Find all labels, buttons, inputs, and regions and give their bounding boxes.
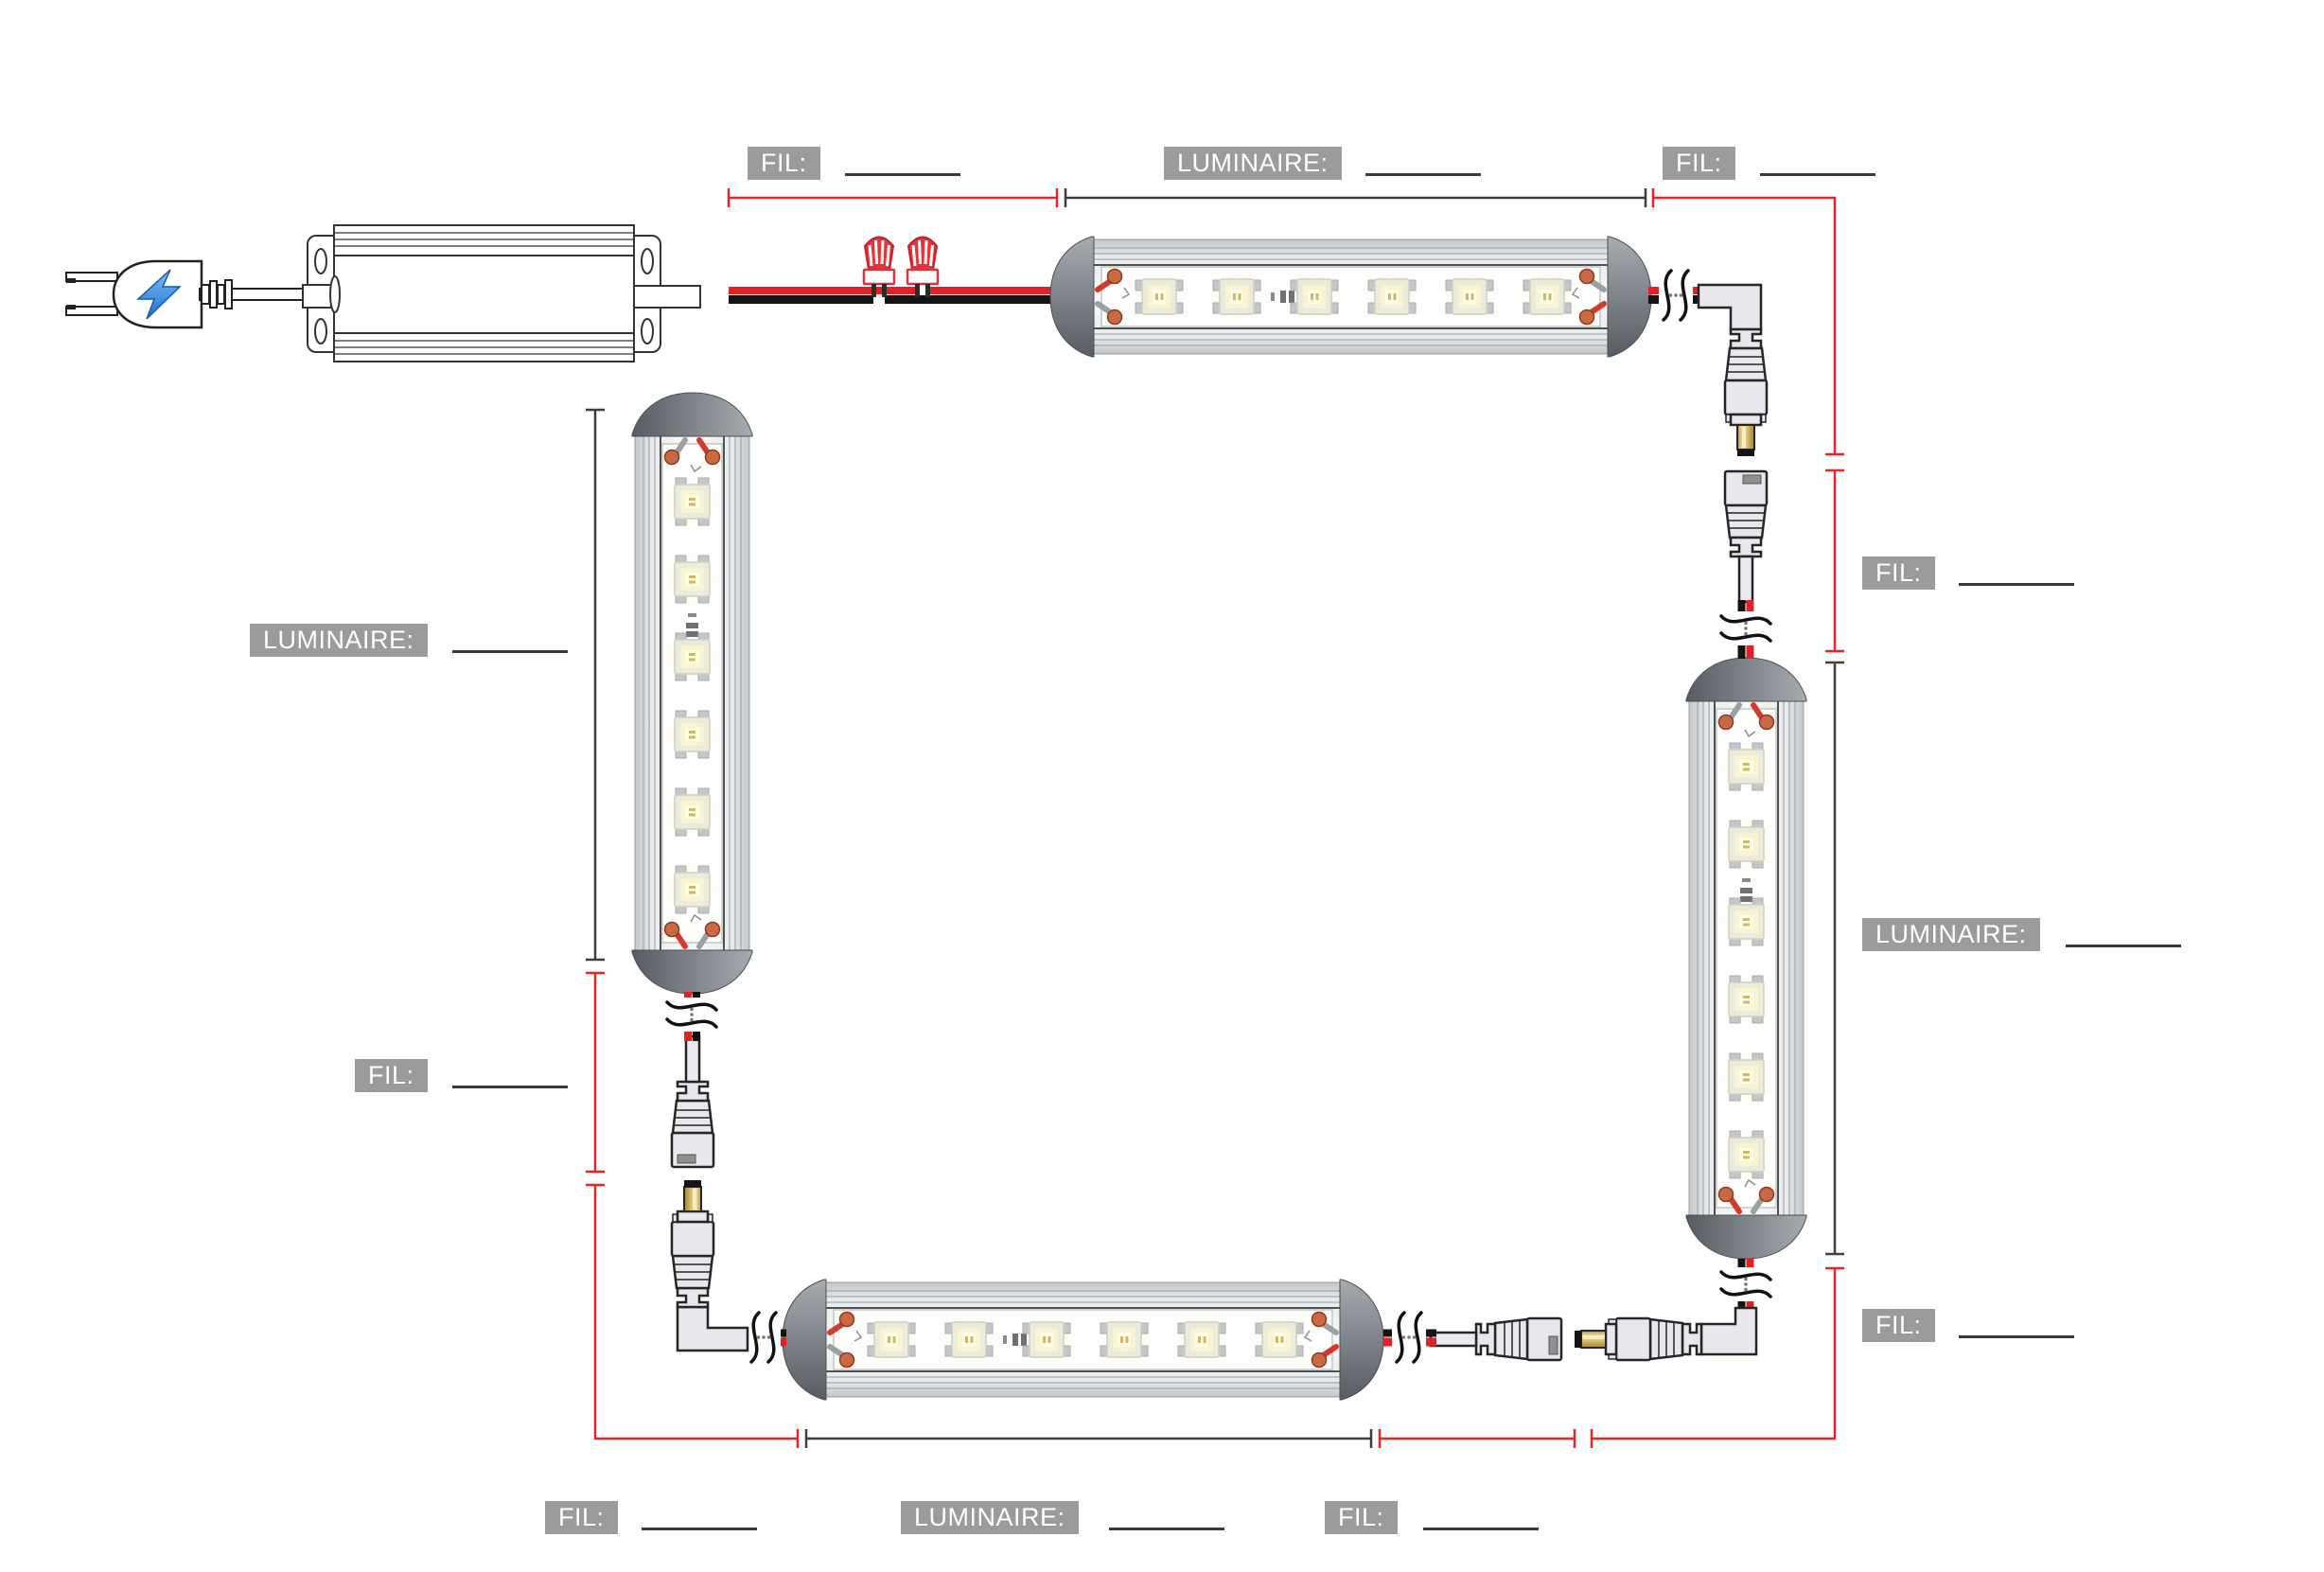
dc-jack-female <box>1725 471 1767 602</box>
led-bar-right <box>1686 658 1806 1259</box>
wire-bar3-output <box>744 1312 786 1363</box>
dc-plug-male <box>672 1180 713 1307</box>
wire-bar2-output <box>1720 1259 1771 1311</box>
dc-plug-male <box>1725 329 1767 456</box>
led-bar-top <box>1050 237 1651 357</box>
label-fil-left-middle: FIL: <box>355 1059 428 1092</box>
value-line-fil-bottom-middle <box>1423 1528 1539 1530</box>
value-line-luminaire-top <box>1365 173 1481 176</box>
wire-driver-to-bar1 <box>729 286 1055 305</box>
elbow-connector <box>1699 285 1761 329</box>
wire-bar4-to-jack <box>666 992 717 1041</box>
driver-output-terminal <box>634 286 700 308</box>
label-fil-bottom-left: FIL: <box>545 1501 618 1534</box>
label-luminaire-top: LUMINAIRE: <box>1164 147 1342 180</box>
value-line-luminaire-right <box>2066 945 2181 947</box>
label-fil-right-bottom: FIL: <box>1862 1309 1935 1342</box>
value-line-luminaire-bottom <box>1109 1528 1224 1530</box>
wiring-diagram-page: FIL: LUMINAIRE: FIL: FIL: LUMINAIRE: FIL… <box>0 0 2324 1572</box>
label-fil-right-middle: FIL: <box>1862 556 1935 590</box>
wire-jack-to-bar2 <box>1720 600 1771 659</box>
dc-plug-male <box>1575 1318 1701 1360</box>
label-fil-bottom-middle: FIL: <box>1325 1501 1398 1534</box>
ac-plug <box>66 261 315 327</box>
led-bar-left <box>632 393 752 994</box>
label-luminaire-right: LUMINAIRE: <box>1862 918 2040 951</box>
value-line-fil-top-left <box>845 173 960 176</box>
dimension-lines-luminaire <box>586 188 1844 1448</box>
label-fil-top-right: FIL: <box>1663 147 1735 180</box>
value-line-fil-left-middle <box>452 1086 568 1088</box>
label-fil-top-left: FIL: <box>748 147 820 180</box>
dc-jack-female <box>1431 1318 1561 1360</box>
dimension-lines-wire <box>586 188 1844 1448</box>
label-luminaire-bottom: LUMINAIRE: <box>901 1501 1079 1534</box>
value-line-fil-right-middle <box>1959 583 2074 586</box>
dc-jack-female <box>672 1036 713 1167</box>
wire-jack-to-bar3 <box>1383 1312 1436 1363</box>
power-driver <box>303 225 700 362</box>
value-line-luminaire-left <box>452 650 568 653</box>
value-line-fil-top-right <box>1760 173 1875 176</box>
value-line-fil-right-bottom <box>1959 1335 2074 1338</box>
value-line-fil-bottom-left <box>642 1528 757 1530</box>
wire-bar1-output <box>1648 270 1701 321</box>
led-bar-bottom <box>783 1280 1383 1400</box>
elbow-connector <box>1701 1308 1756 1354</box>
elbow-connector <box>678 1307 748 1351</box>
label-luminaire-left: LUMINAIRE: <box>250 624 428 657</box>
